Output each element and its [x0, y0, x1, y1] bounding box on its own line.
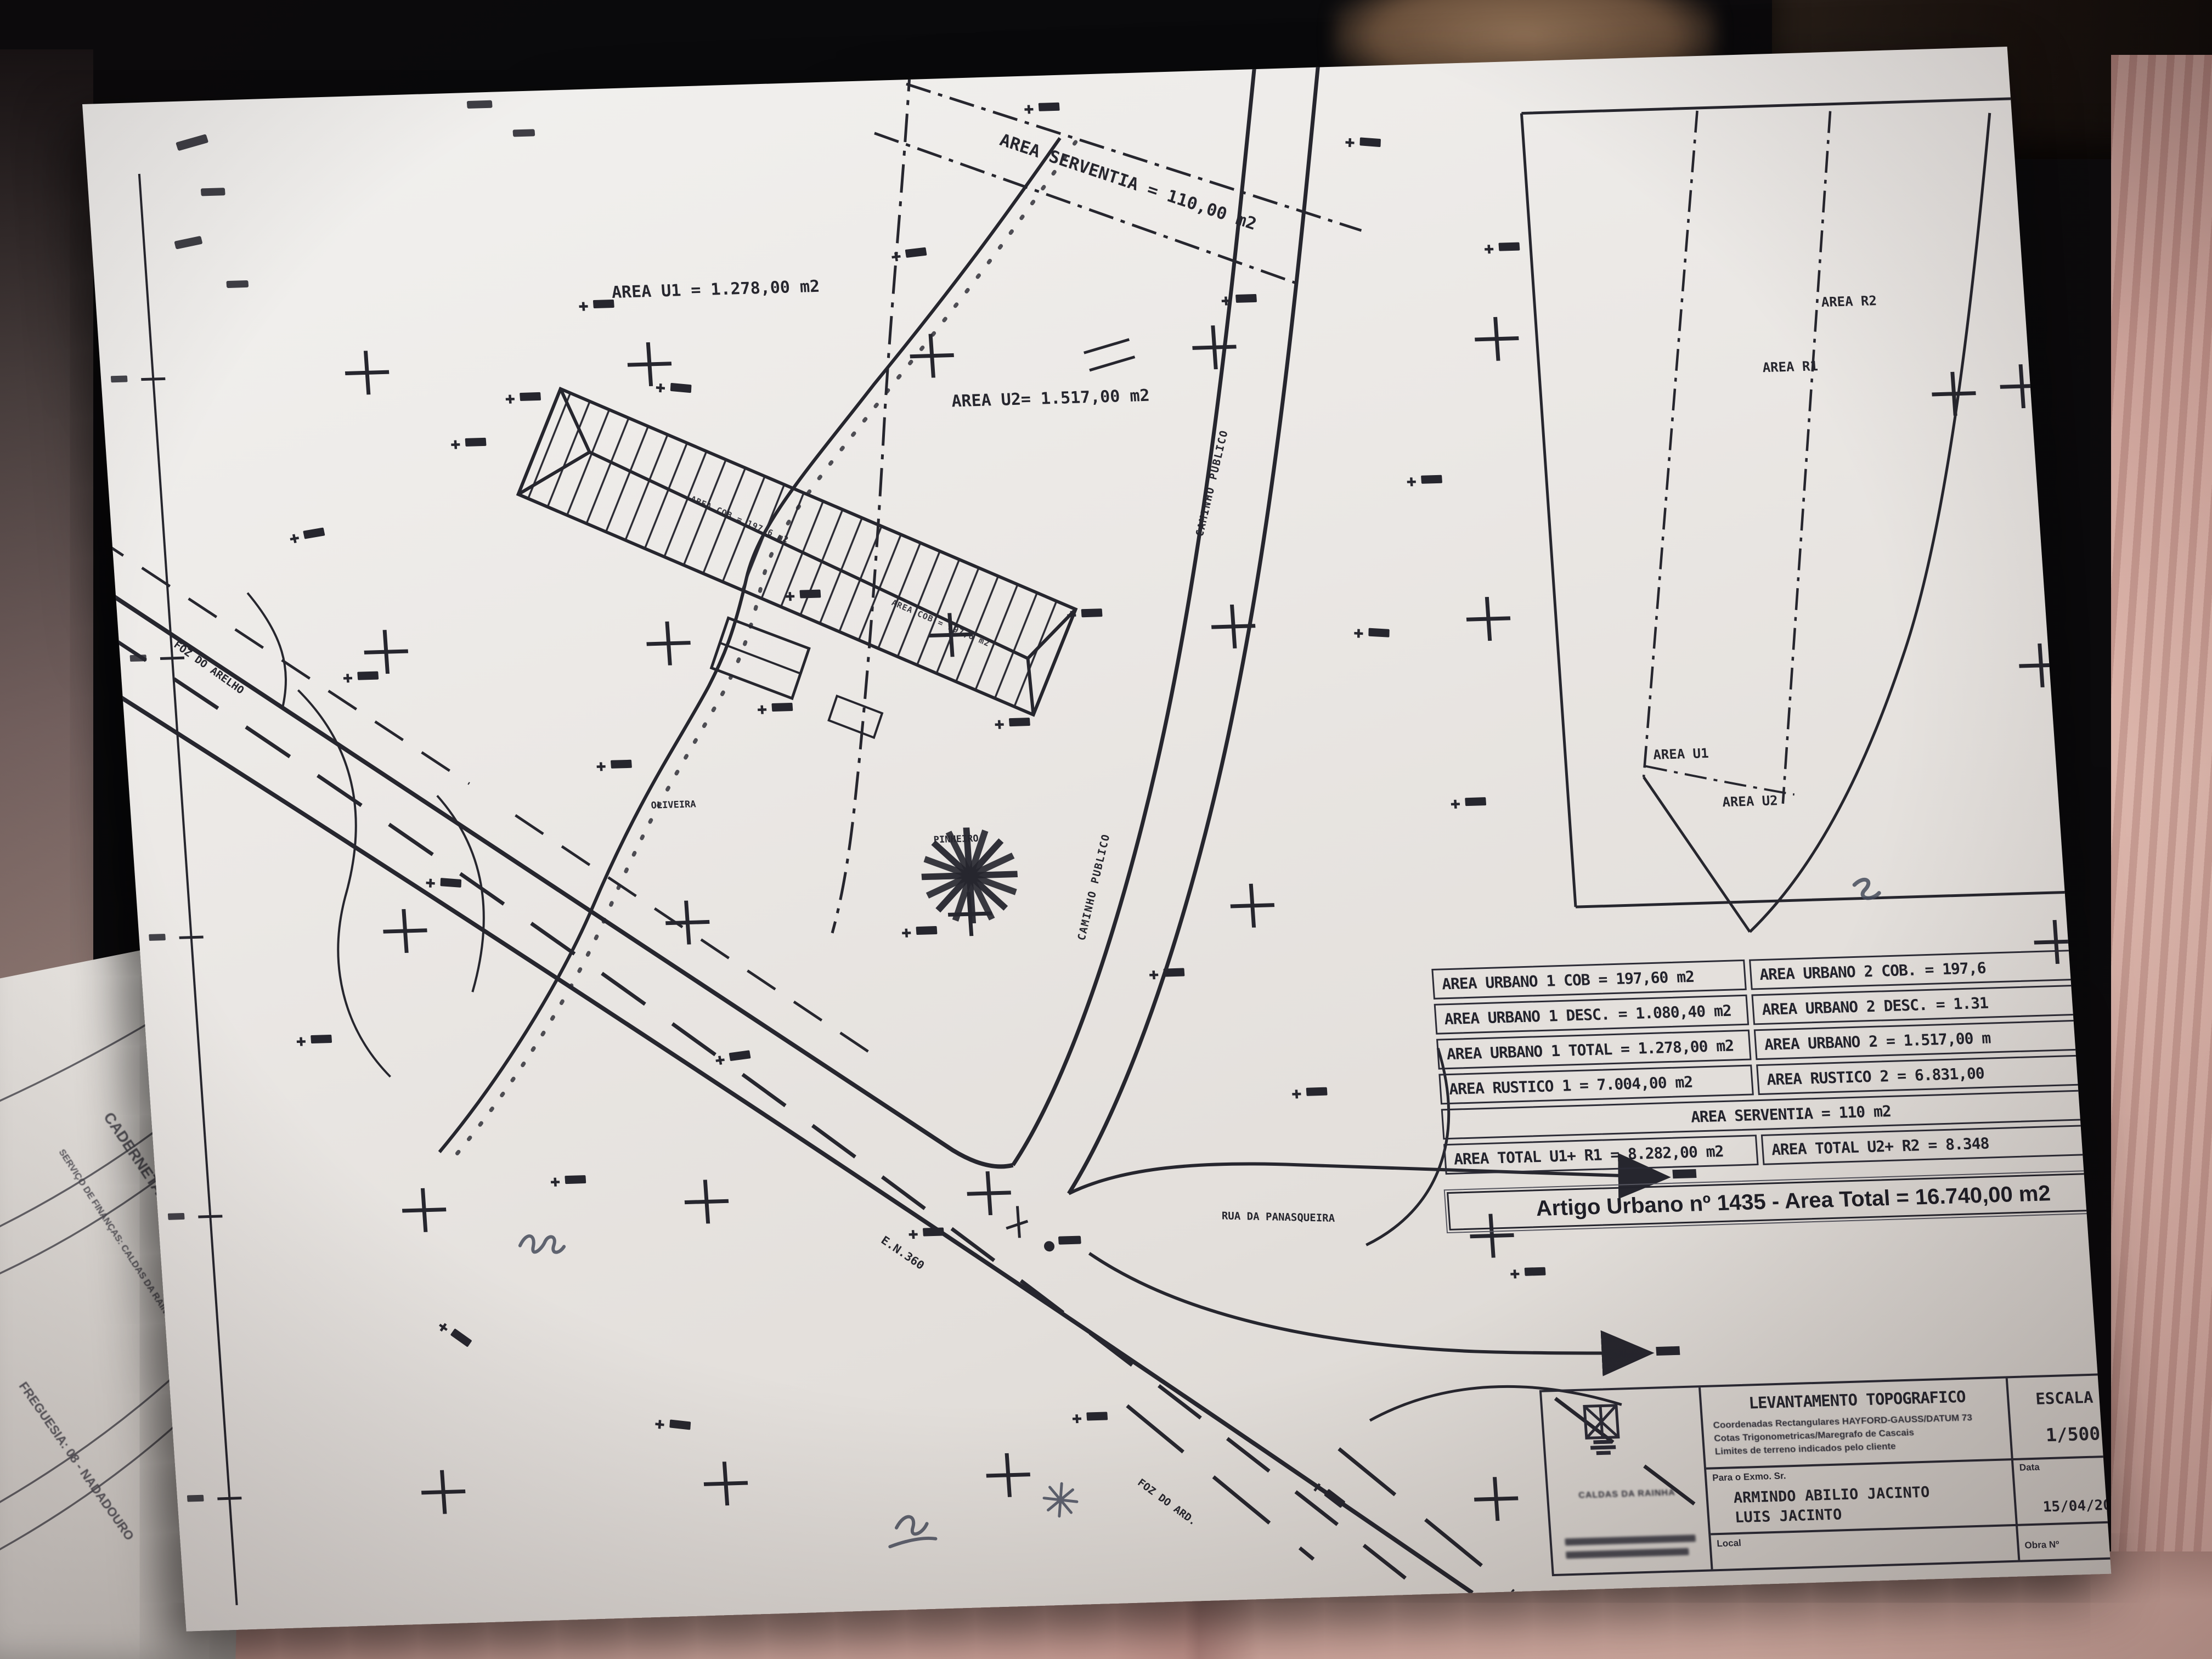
pinheiro-label: PINHEIRO [933, 833, 979, 845]
title-block-title: LEVANTAMENTO TOPOGRAFICO [1707, 1386, 2007, 1413]
table-cell-urbano2-desc: AREA URBANO 2 DESC. = 1.31 [1752, 983, 2112, 1025]
oliveira-label: OLIVEIRA [651, 799, 696, 811]
building [511, 374, 1084, 748]
table-cell-rustico2: AREA RUSTICO 2 = 6.831,00 [1756, 1053, 2111, 1096]
side-panel-frame [1521, 99, 2064, 907]
obra-label: Obra Nº [2024, 1539, 2059, 1551]
company-address-line [1565, 1534, 1696, 1545]
client-name: LUIS JACINTO [1734, 1506, 1842, 1526]
table-cell-urbano1-total: AREA URBANO 1 TOTAL = 1.278,00 m2 [1436, 1030, 1752, 1070]
local-label: Local [1717, 1538, 1742, 1549]
table-cell-total-u1r1: AREA TOTAL U1+ R1 = 8.282,00 m2 [1443, 1135, 1759, 1175]
title-block-divider [2006, 1378, 2021, 1560]
title-block: CALDAS DA RAINHA LEVANTAMENTO TOPOGRAFIC… [1539, 1373, 2111, 1577]
date-label: Data [2019, 1462, 2040, 1474]
survey-sheet: ✳ ✳ [82, 47, 2111, 1632]
company-logo-icon [1580, 1403, 1624, 1457]
contour-lines [247, 554, 1622, 1452]
pinheiro-tree-icon: ✳ ✳ [883, 784, 1056, 972]
side-panel-label-u1: AREA U1 [1652, 746, 1709, 763]
fabric-right [2111, 55, 2212, 1659]
client-label: Para o Exmo. Sr. [1712, 1470, 1786, 1483]
road-rua-panasqueira [1067, 1150, 1708, 1373]
date-value: 15/04/20 [2042, 1497, 2111, 1516]
title-block-divider [1699, 1387, 1713, 1569]
rua-panasqueira-label: RUA DA PANASQUEIRA [1222, 1210, 1335, 1224]
scale-value: 1/500 [2045, 1423, 2101, 1446]
shadow-left [0, 49, 93, 1015]
company-address-line [1566, 1548, 1689, 1559]
summary-table: AREA URBANO 1 COB = 197,60 m2 AREA URBAN… [1431, 948, 2111, 1179]
table-cell-urbano2-total: AREA URBANO 2 = 1.517,00 m [1754, 1018, 2111, 1060]
photo-scene: CADERNETA PREDIAL UR SERVIÇO DE FINANÇAS… [0, 0, 2212, 1659]
table-cell-urbano1-desc: AREA URBANO 1 DESC. = 1.080,40 m2 [1434, 995, 1750, 1035]
client-name: ARMINDO ABILIO JACINTO [1733, 1484, 1931, 1507]
side-panel-label-u2: AREA U2 [1722, 793, 1779, 810]
side-panel-parcel [1599, 102, 2045, 935]
company-location: CALDAS DA RAINHA [1565, 1488, 1689, 1502]
table-cell-rustico1: AREA RUSTICO 1 = 7.004,00 m2 [1438, 1064, 1754, 1104]
junction-markers [1005, 1204, 1081, 1252]
annotation-blobs [165, 99, 545, 289]
scale-label: ESCALA [2035, 1388, 2093, 1408]
side-panel-label-r2: AREA R2 [1821, 293, 1877, 310]
table-cell-total-u2r2: AREA TOTAL U2+ R2 = 8.348 [1761, 1123, 2111, 1165]
side-panel-label-r1: AREA R1 [1762, 358, 1819, 375]
